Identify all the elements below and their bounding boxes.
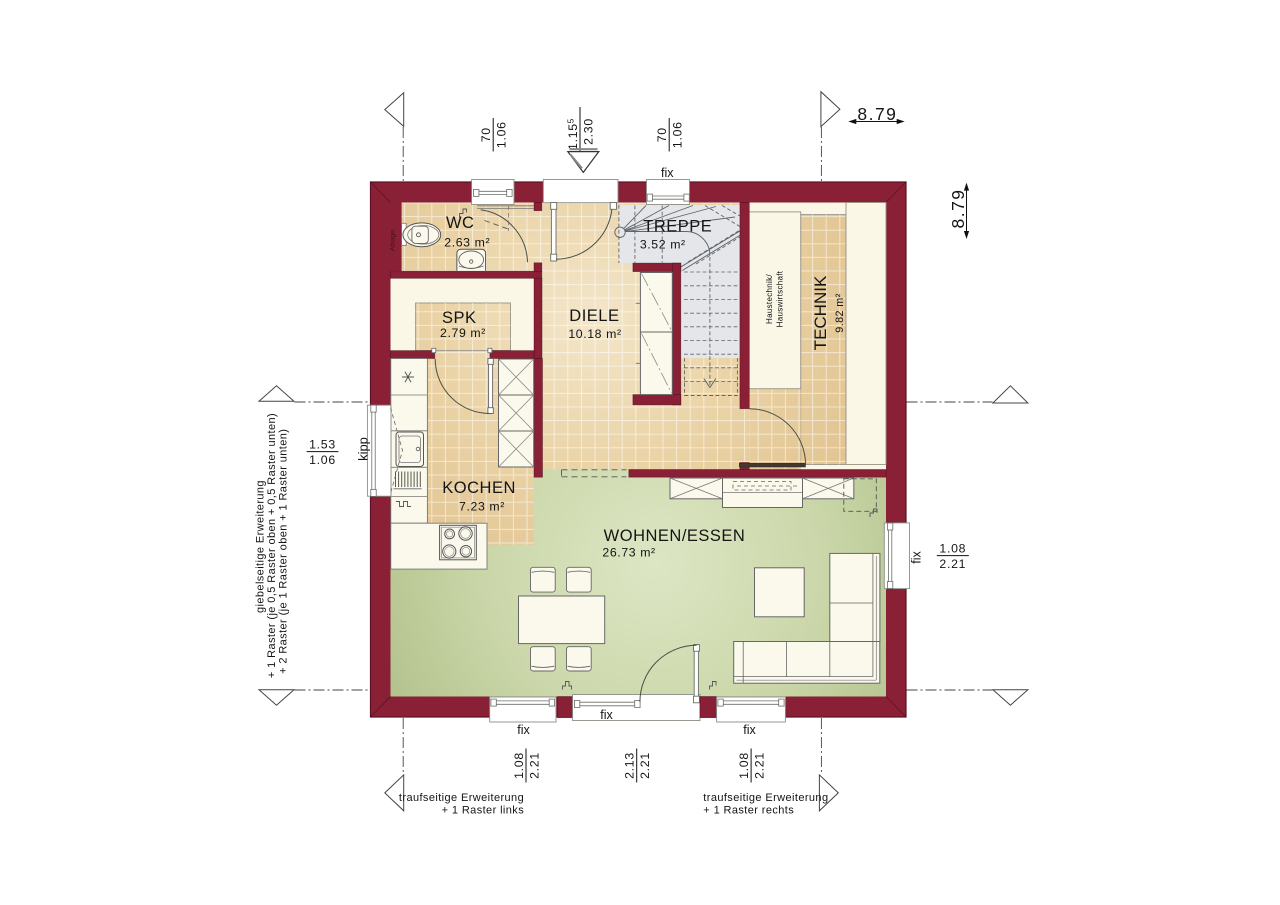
svg-text:2.63 m²: 2.63 m² [444, 236, 490, 250]
svg-text:10.18 m²: 10.18 m² [568, 327, 621, 341]
svg-text:Hauswirtschaft: Hauswirtschaft [775, 270, 784, 327]
svg-text:kipp: kipp [356, 437, 371, 461]
svg-text:8.79: 8.79 [857, 104, 897, 124]
svg-text:2.21: 2.21 [527, 752, 541, 779]
svg-text:8.79: 8.79 [948, 188, 968, 228]
svg-text:3.52 m²: 3.52 m² [640, 237, 686, 251]
svg-text:2.21: 2.21 [939, 557, 966, 571]
svg-text:1.08: 1.08 [737, 752, 751, 779]
svg-text:traufseitige Erweiterung: traufseitige Erweiterung [703, 792, 828, 804]
svg-text:+ 2 Raster (je 1 Raster oben +: + 2 Raster (je 1 Raster oben + 1 Raster … [278, 429, 290, 674]
svg-text:Ablage: Ablage [389, 230, 396, 251]
svg-text:fix: fix [517, 723, 530, 737]
svg-text:70: 70 [655, 127, 669, 142]
svg-text:TECHNIK: TECHNIK [811, 275, 830, 350]
svg-text:1.53: 1.53 [309, 438, 336, 452]
svg-text:26.73 m²: 26.73 m² [602, 546, 655, 560]
svg-text:WOHNEN/ESSEN: WOHNEN/ESSEN [604, 527, 746, 545]
svg-text:2.21: 2.21 [638, 752, 652, 779]
svg-text:2.79 m²: 2.79 m² [440, 326, 486, 340]
svg-text:giebelseitige Erweiterung: giebelseitige Erweiterung [254, 480, 266, 613]
svg-text:TREPPE: TREPPE [643, 217, 712, 235]
svg-text:SPK: SPK [442, 309, 477, 327]
svg-text:1.06: 1.06 [495, 121, 509, 148]
svg-text:traufseitige Erweiterung: traufseitige Erweiterung [399, 792, 524, 804]
svg-text:fix: fix [600, 708, 613, 722]
svg-text:2.13: 2.13 [623, 752, 637, 779]
svg-text:fix: fix [661, 166, 674, 180]
svg-text:+ 1 Raster (je 0,5 Raster oben: + 1 Raster (je 0,5 Raster oben + 0,5 Ras… [266, 413, 278, 678]
svg-text:Haustechnik/: Haustechnik/ [765, 274, 774, 324]
svg-text:WC: WC [446, 214, 475, 232]
svg-text:2.21: 2.21 [752, 752, 766, 779]
svg-text:DIELE: DIELE [569, 307, 619, 325]
svg-text:1.06: 1.06 [671, 121, 685, 148]
svg-text:fix: fix [910, 551, 924, 564]
svg-text:1.08: 1.08 [512, 752, 526, 779]
svg-text:fix: fix [743, 723, 756, 737]
svg-text:1.06: 1.06 [309, 453, 336, 467]
svg-text:70: 70 [479, 127, 493, 142]
svg-text:2.30: 2.30 [581, 118, 595, 145]
svg-text:KOCHEN: KOCHEN [442, 479, 516, 497]
svg-text:1.08: 1.08 [939, 541, 966, 555]
svg-text:7.23 m²: 7.23 m² [459, 500, 505, 514]
svg-text:+ 1 Raster links: + 1 Raster links [442, 805, 525, 817]
svg-text:9.82 m²: 9.82 m² [834, 293, 846, 332]
svg-text:+ 1 Raster rechts: + 1 Raster rechts [703, 805, 794, 817]
